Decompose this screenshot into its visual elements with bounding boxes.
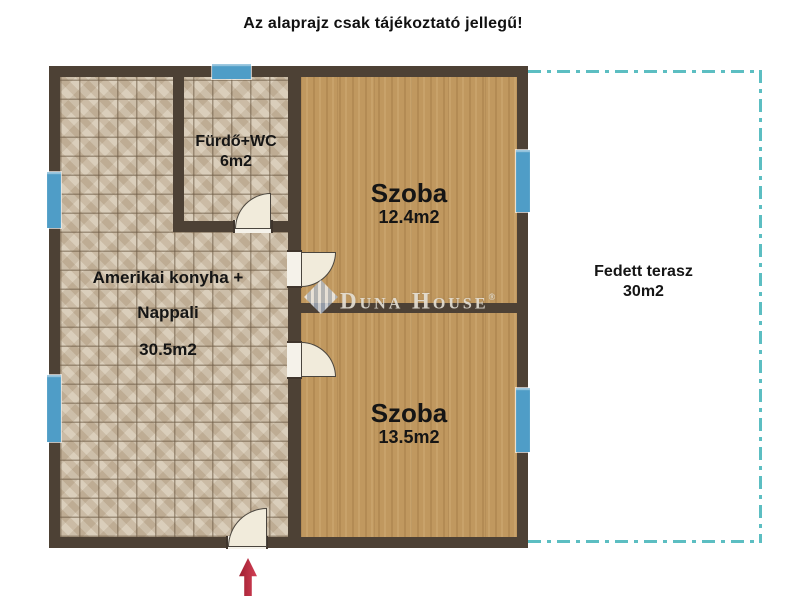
disclaimer-title: Az alaprajz csak tájékoztató jellegű!	[0, 15, 766, 33]
living-name-line2: Nappali	[48, 303, 288, 323]
terrace-label: Fedett terasz 30m2	[528, 262, 759, 302]
living-name-line1: Amerikai konyha +	[48, 268, 288, 288]
window-top	[212, 64, 251, 79]
terrace-boundary-right	[759, 70, 762, 543]
window-right-1	[516, 150, 530, 212]
living-area: 30.5m2	[48, 340, 288, 360]
terrace-boundary-top	[528, 70, 762, 73]
bathroom-area: 6m2	[184, 152, 288, 172]
bedroom2-name: Szoba	[300, 400, 518, 426]
wall-right	[517, 77, 528, 537]
floorplan-canvas: Az alaprajz csak tájékoztató jellegű! Fe…	[0, 0, 800, 600]
terrace-name: Fedett terasz	[528, 262, 759, 282]
entrance-arrow-icon	[239, 558, 257, 596]
opening-bedroom1	[287, 250, 302, 288]
terrace-boundary-bottom	[528, 540, 762, 543]
wall-bathroom-vertical	[173, 77, 184, 232]
wall-top	[49, 66, 528, 77]
window-right-2	[516, 388, 530, 452]
opening-bedroom2	[287, 341, 302, 379]
registered-mark: ®	[488, 292, 495, 302]
bedroom2-label: Szoba 13.5m2	[300, 400, 518, 448]
terrace-area: 30m2	[528, 282, 759, 302]
wall-bottom	[49, 537, 528, 548]
window-left-2	[47, 375, 61, 442]
bedroom1-label: Szoba 12.4m2	[300, 180, 518, 228]
bathroom-label: Fürdő+WC 6m2	[184, 132, 288, 172]
bedroom2-area: 13.5m2	[300, 426, 518, 448]
dunahouse-watermark: Duna House®	[340, 284, 495, 315]
dunahouse-brand: Duna House	[340, 289, 488, 314]
window-left-1	[47, 172, 61, 228]
living-label: Amerikai konyha + Nappali 30.5m2	[48, 268, 288, 360]
bedroom1-area: 12.4m2	[300, 206, 518, 228]
bedroom1-name: Szoba	[300, 180, 518, 206]
bathroom-name: Fürdő+WC	[184, 132, 288, 152]
